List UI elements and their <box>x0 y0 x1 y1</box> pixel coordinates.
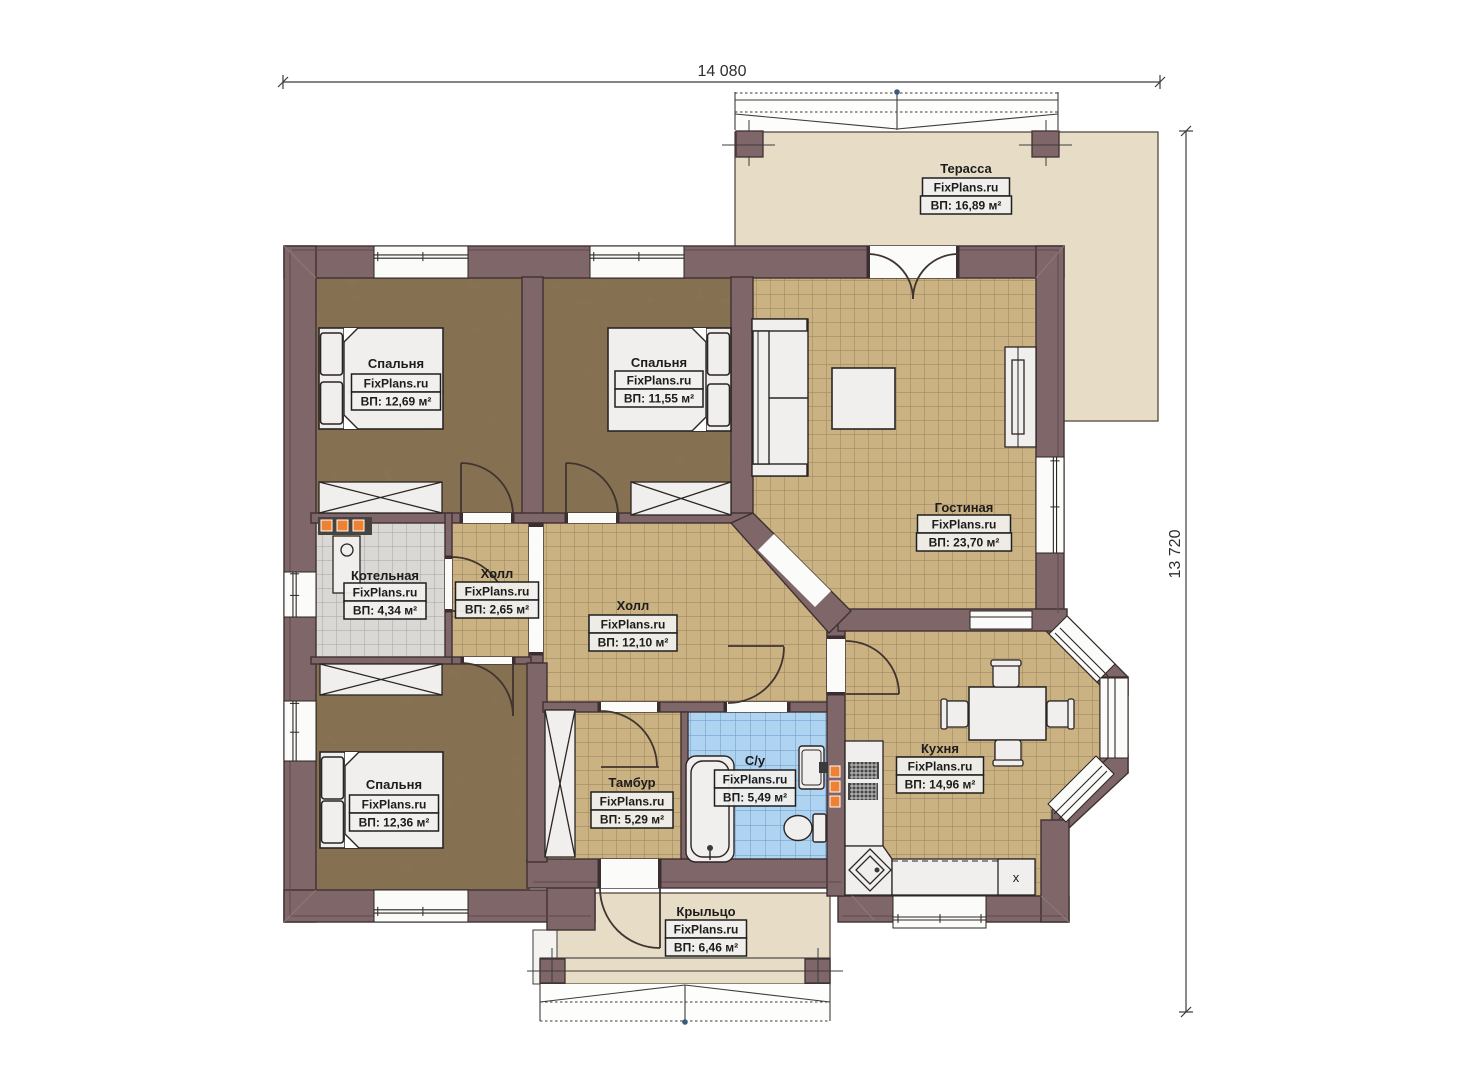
svg-text:Спальня: Спальня <box>366 777 422 792</box>
svg-text:FixPlans.ru: FixPlans.ru <box>362 798 427 812</box>
svg-text:Холл: Холл <box>481 566 514 581</box>
svg-text:ВП: 6,46 м²: ВП: 6,46 м² <box>674 941 738 955</box>
svg-text:ВП: 12,36 м²: ВП: 12,36 м² <box>359 816 430 830</box>
svg-text:ВП: 16,89 м²: ВП: 16,89 м² <box>931 199 1002 213</box>
svg-text:13 720: 13 720 <box>1167 529 1184 578</box>
svg-text:FixPlans.ru: FixPlans.ru <box>674 923 739 937</box>
svg-text:FixPlans.ru: FixPlans.ru <box>908 760 973 774</box>
svg-text:ВП: 12,10 м²: ВП: 12,10 м² <box>598 636 669 650</box>
svg-text:ВП: 23,70 м²: ВП: 23,70 м² <box>929 536 1000 550</box>
svg-text:FixPlans.ru: FixPlans.ru <box>723 773 788 787</box>
svg-text:ВП: 12,69 м²: ВП: 12,69 м² <box>361 395 432 409</box>
svg-text:FixPlans.ru: FixPlans.ru <box>932 518 997 532</box>
svg-text:FixPlans.ru: FixPlans.ru <box>627 374 692 388</box>
svg-text:ВП: 2,65 м²: ВП: 2,65 м² <box>465 603 529 617</box>
svg-text:ВП: 5,29 м²: ВП: 5,29 м² <box>600 813 664 827</box>
svg-text:FixPlans.ru: FixPlans.ru <box>934 181 999 195</box>
svg-text:Терасса: Терасса <box>940 161 992 176</box>
svg-text:FixPlans.ru: FixPlans.ru <box>601 618 666 632</box>
svg-text:FixPlans.ru: FixPlans.ru <box>353 586 418 600</box>
svg-text:С/у: С/у <box>745 753 766 768</box>
svg-text:Котельная: Котельная <box>351 568 419 583</box>
svg-text:FixPlans.ru: FixPlans.ru <box>600 795 665 809</box>
svg-text:14 080: 14 080 <box>698 63 747 80</box>
svg-text:FixPlans.ru: FixPlans.ru <box>364 377 429 391</box>
svg-text:x: x <box>1013 870 1020 885</box>
svg-text:FixPlans.ru: FixPlans.ru <box>465 585 530 599</box>
svg-text:ВП: 14,96 м²: ВП: 14,96 м² <box>905 778 976 792</box>
svg-text:Кухня: Кухня <box>921 741 959 756</box>
svg-text:Спальня: Спальня <box>631 355 687 370</box>
svg-text:ВП: 4,34 м²: ВП: 4,34 м² <box>353 604 417 618</box>
svg-text:Гостиная: Гостиная <box>935 500 994 515</box>
svg-text:Крыльцо: Крыльцо <box>676 904 735 919</box>
svg-text:Тамбур: Тамбур <box>608 775 655 790</box>
svg-text:Холл: Холл <box>617 598 650 613</box>
svg-text:ВП: 5,49 м²: ВП: 5,49 м² <box>723 791 787 805</box>
svg-text:Спальня: Спальня <box>368 356 424 371</box>
svg-text:ВП: 11,55 м²: ВП: 11,55 м² <box>624 392 694 406</box>
